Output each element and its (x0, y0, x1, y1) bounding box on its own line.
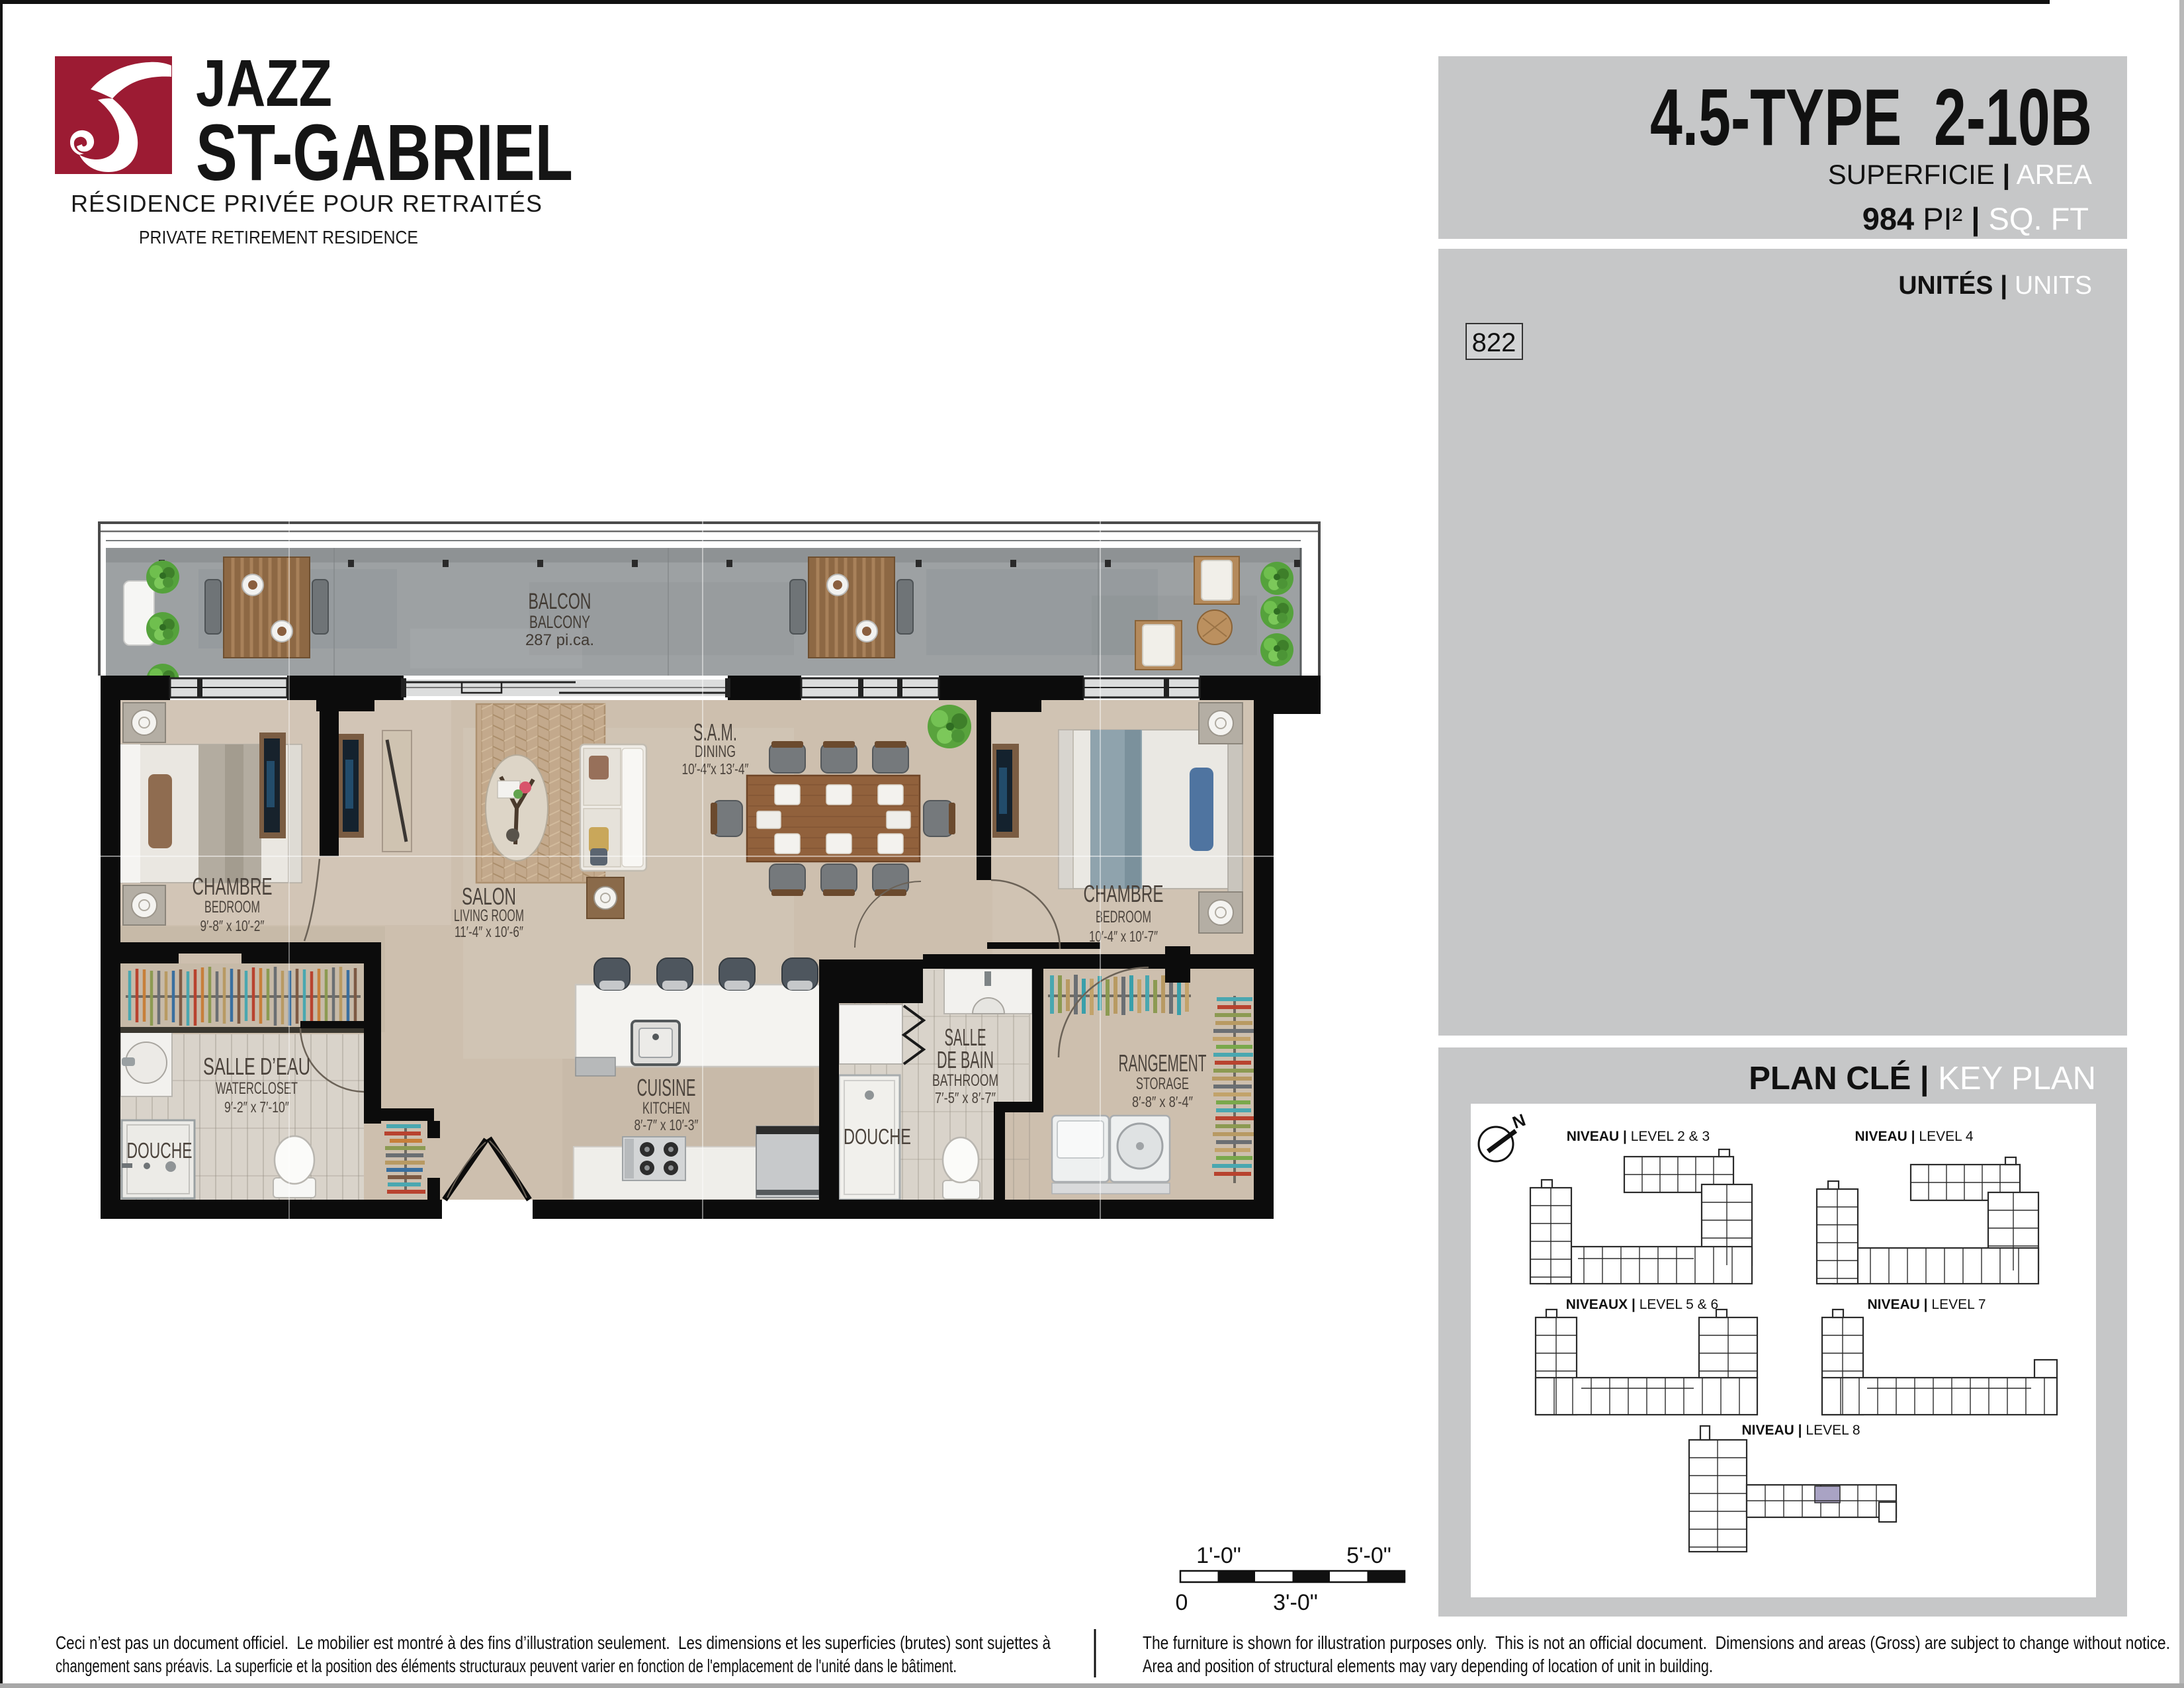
svg-text:changement sans préavis. La su: changement sans préavis. La superficie e… (56, 1656, 957, 1676)
svg-text:822: 822 (1472, 328, 1516, 357)
svg-text:NIVEAU | LEVEL 8: NIVEAU | LEVEL 8 (1741, 1423, 1860, 1438)
svg-text:BATHROOM: BATHROOM (932, 1071, 998, 1090)
svg-text:NIVEAU | LEVEL 2 & 3: NIVEAU | LEVEL 2 & 3 (1567, 1129, 1710, 1144)
svg-text:BALCONY: BALCONY (529, 612, 590, 632)
svg-text:NIVEAU | LEVEL 7: NIVEAU | LEVEL 7 (1867, 1297, 1986, 1312)
svg-text:The furniture is shown for ill: The furniture is shown for illustration … (1143, 1632, 2170, 1653)
svg-text:Ceci n’est pas un document off: Ceci n’est pas un document officiel. Le … (56, 1632, 1051, 1653)
svg-text:RANGEMENT: RANGEMENT (1119, 1049, 1207, 1077)
svg-text:LIVING ROOM: LIVING ROOM (454, 907, 524, 925)
svg-text:WATERCLOSET: WATERCLOSET (216, 1079, 298, 1098)
svg-text:4.5-TYPE 2-10B: 4.5-TYPE 2-10B (1650, 72, 2092, 162)
svg-text:287 pi.ca.: 287 pi.ca. (525, 631, 594, 649)
svg-text:ST-GABRIEL: ST-GABRIEL (196, 107, 573, 197)
svg-text:STORAGE: STORAGE (1136, 1075, 1189, 1093)
svg-text:PLAN CLÉ | KEY PLAN: PLAN CLÉ | KEY PLAN (1749, 1061, 2096, 1096)
svg-text:9′-8″ x 10′-2″: 9′-8″ x 10′-2″ (200, 917, 265, 934)
svg-text:NIVEAUX | LEVEL 5 & 6: NIVEAUX | LEVEL 5 & 6 (1566, 1297, 1718, 1312)
svg-text:RÉSIDENCE PRIVÉE POUR RETRAITÉ: RÉSIDENCE PRIVÉE POUR RETRAITÉS (71, 190, 542, 217)
svg-text:PRIVATE RETIREMENT RESIDENCE: PRIVATE RETIREMENT RESIDENCE (139, 227, 418, 247)
svg-text:8′-8″ x 8′-4″: 8′-8″ x 8′-4″ (1132, 1093, 1193, 1110)
svg-text:UNITÉS | UNITS: UNITÉS | UNITS (1898, 271, 2092, 300)
svg-text:7′-5″ x 8′-7″: 7′-5″ x 8′-7″ (935, 1089, 996, 1106)
svg-text:DE BAIN: DE BAIN (937, 1046, 994, 1073)
svg-text:DINING: DINING (695, 742, 736, 761)
svg-text:KITCHEN: KITCHEN (642, 1099, 690, 1118)
svg-text:BEDROOM: BEDROOM (1096, 908, 1151, 926)
svg-text:10′-4″ x 10′-7″: 10′-4″ x 10′-7″ (1089, 928, 1158, 945)
svg-text:11′-4″ x 10′-6″: 11′-4″ x 10′-6″ (455, 923, 523, 940)
svg-text:1'-0": 1'-0" (1196, 1543, 1241, 1568)
svg-text:NIVEAU | LEVEL 4: NIVEAU | LEVEL 4 (1855, 1129, 1973, 1144)
svg-text:BEDROOM: BEDROOM (204, 898, 260, 916)
svg-text:CHAMBRE: CHAMBRE (1084, 880, 1164, 907)
svg-text:3'-0": 3'-0" (1273, 1590, 1318, 1615)
svg-text:BALCON: BALCON (529, 589, 591, 614)
svg-text:SALON: SALON (462, 883, 516, 910)
svg-text:9′-2″ x 7′-10″: 9′-2″ x 7′-10″ (224, 1098, 289, 1116)
svg-text:SALLE D’EAU: SALLE D’EAU (203, 1053, 310, 1080)
svg-text:10′-4″x 13′-4″: 10′-4″x 13′-4″ (682, 760, 749, 777)
svg-text:8′-7″ x 10′-3″: 8′-7″ x 10′-3″ (634, 1116, 699, 1133)
svg-text:Area and position of structura: Area and position of structural elements… (1143, 1656, 1713, 1676)
svg-text:984 PI² | SQ. FT: 984 PI² | SQ. FT (1862, 201, 2089, 236)
svg-text:CUISINE: CUISINE (637, 1074, 696, 1101)
svg-text:SUPERFICIE | AREA: SUPERFICIE | AREA (1828, 159, 2092, 191)
svg-text:5'-0": 5'-0" (1346, 1543, 1391, 1568)
svg-text:S.A.M.: S.A.M. (693, 719, 737, 746)
svg-text:0: 0 (1176, 1590, 1188, 1615)
svg-text:CHAMBRE: CHAMBRE (193, 873, 273, 900)
svg-text:DOUCHE: DOUCHE (127, 1138, 193, 1163)
svg-text:DOUCHE: DOUCHE (844, 1124, 911, 1149)
